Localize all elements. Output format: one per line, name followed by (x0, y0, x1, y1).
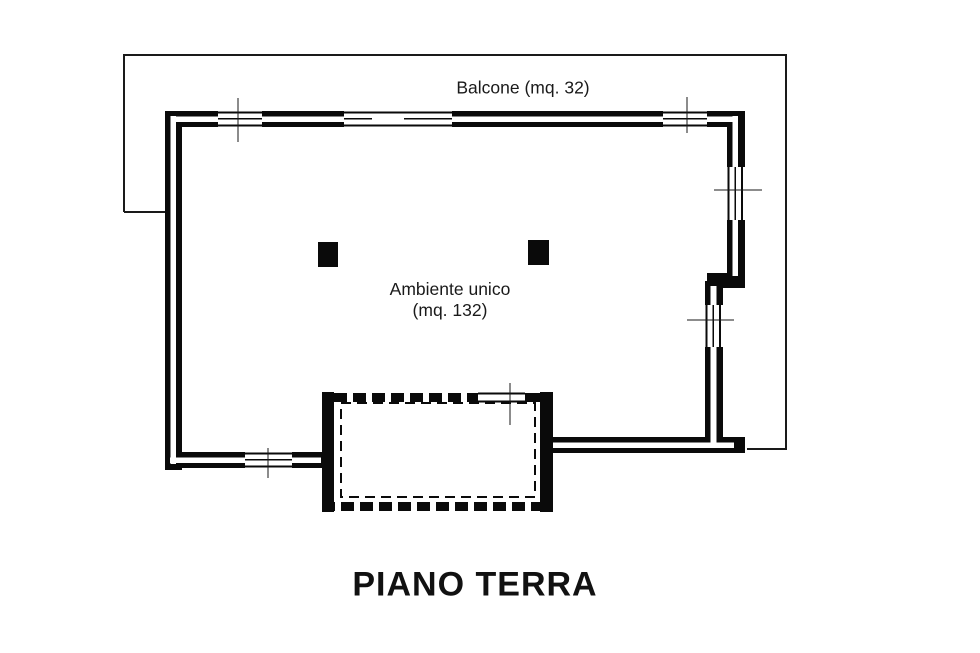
wall-annex-right (540, 392, 553, 512)
window-right-upper (727, 167, 745, 220)
window-top-3 (372, 111, 404, 127)
room-label-area: (mq. 132) (340, 300, 560, 321)
window-top-5 (663, 111, 707, 127)
pillar-left (318, 242, 338, 267)
annex-inner-dashed-outline (341, 403, 535, 497)
floorplan-page: Balcone (mq. 32) Ambiente unico (mq. 132… (0, 0, 980, 653)
window-top-1 (218, 111, 262, 127)
balcony-label: Balcone (mq. 32) (456, 78, 589, 99)
room-label: Ambiente unico (mq. 132) (340, 279, 560, 321)
pillars (318, 240, 549, 267)
window-right-lower (705, 305, 723, 347)
wall-annex-left (322, 392, 334, 512)
core-bottom-right (553, 443, 734, 449)
room-label-name: Ambiente unico (340, 279, 560, 300)
annex-projection (322, 394, 552, 507)
pillar-right (528, 240, 549, 265)
window-top-4 (404, 111, 452, 127)
core-left (171, 116, 177, 464)
floor-title: PIANO TERRA (352, 566, 597, 605)
window-top-2 (344, 111, 372, 127)
